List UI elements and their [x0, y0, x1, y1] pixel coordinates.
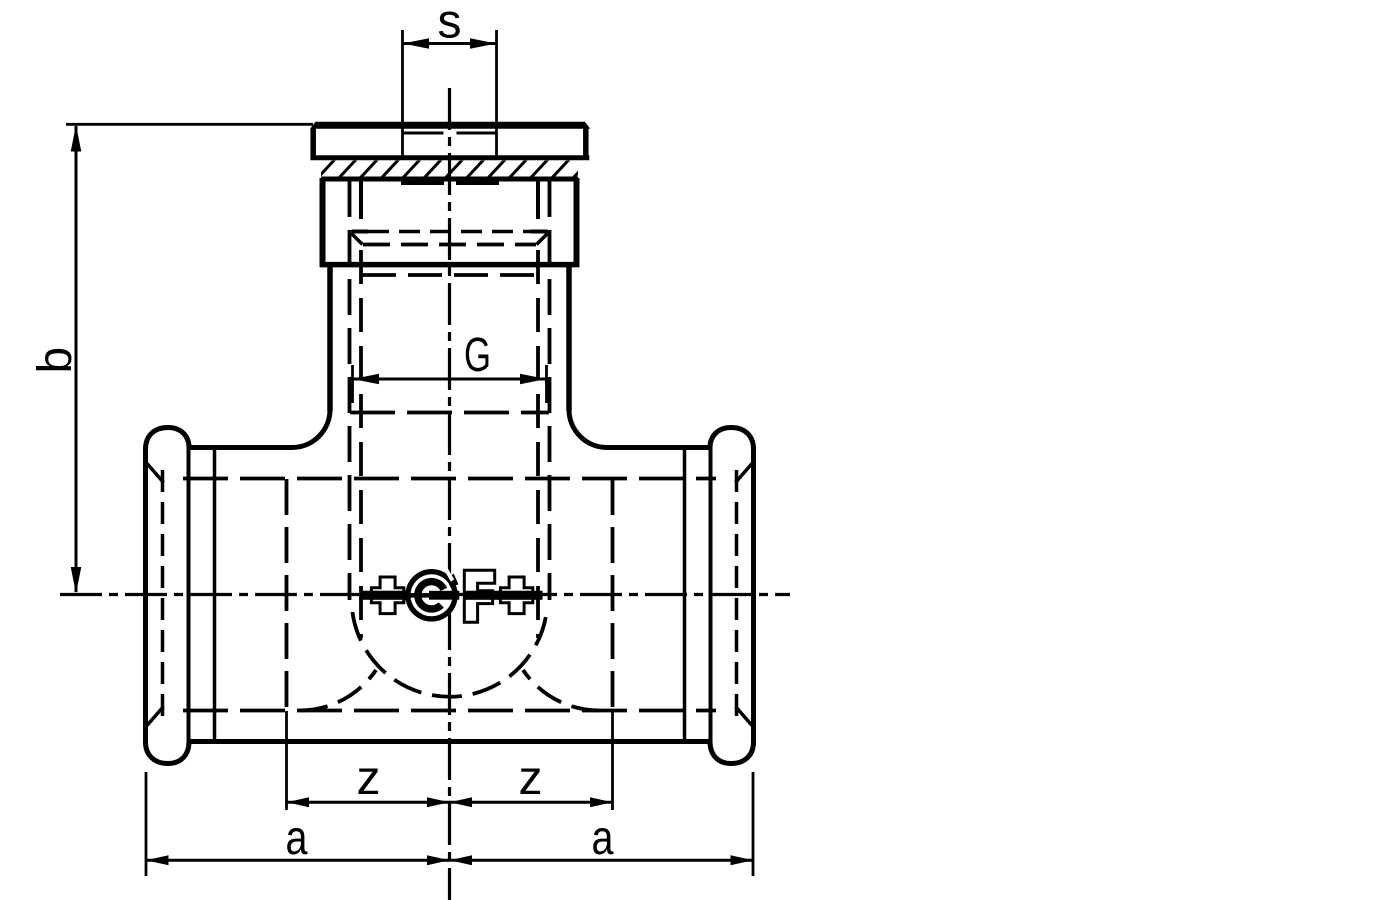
svg-text:a: a — [592, 812, 614, 865]
svg-text:G: G — [464, 329, 491, 382]
svg-text:z: z — [357, 752, 381, 805]
svg-text:a: a — [286, 812, 308, 865]
svg-text:z: z — [519, 752, 543, 805]
svg-text:s: s — [438, 0, 462, 49]
svg-text:b: b — [29, 347, 82, 374]
